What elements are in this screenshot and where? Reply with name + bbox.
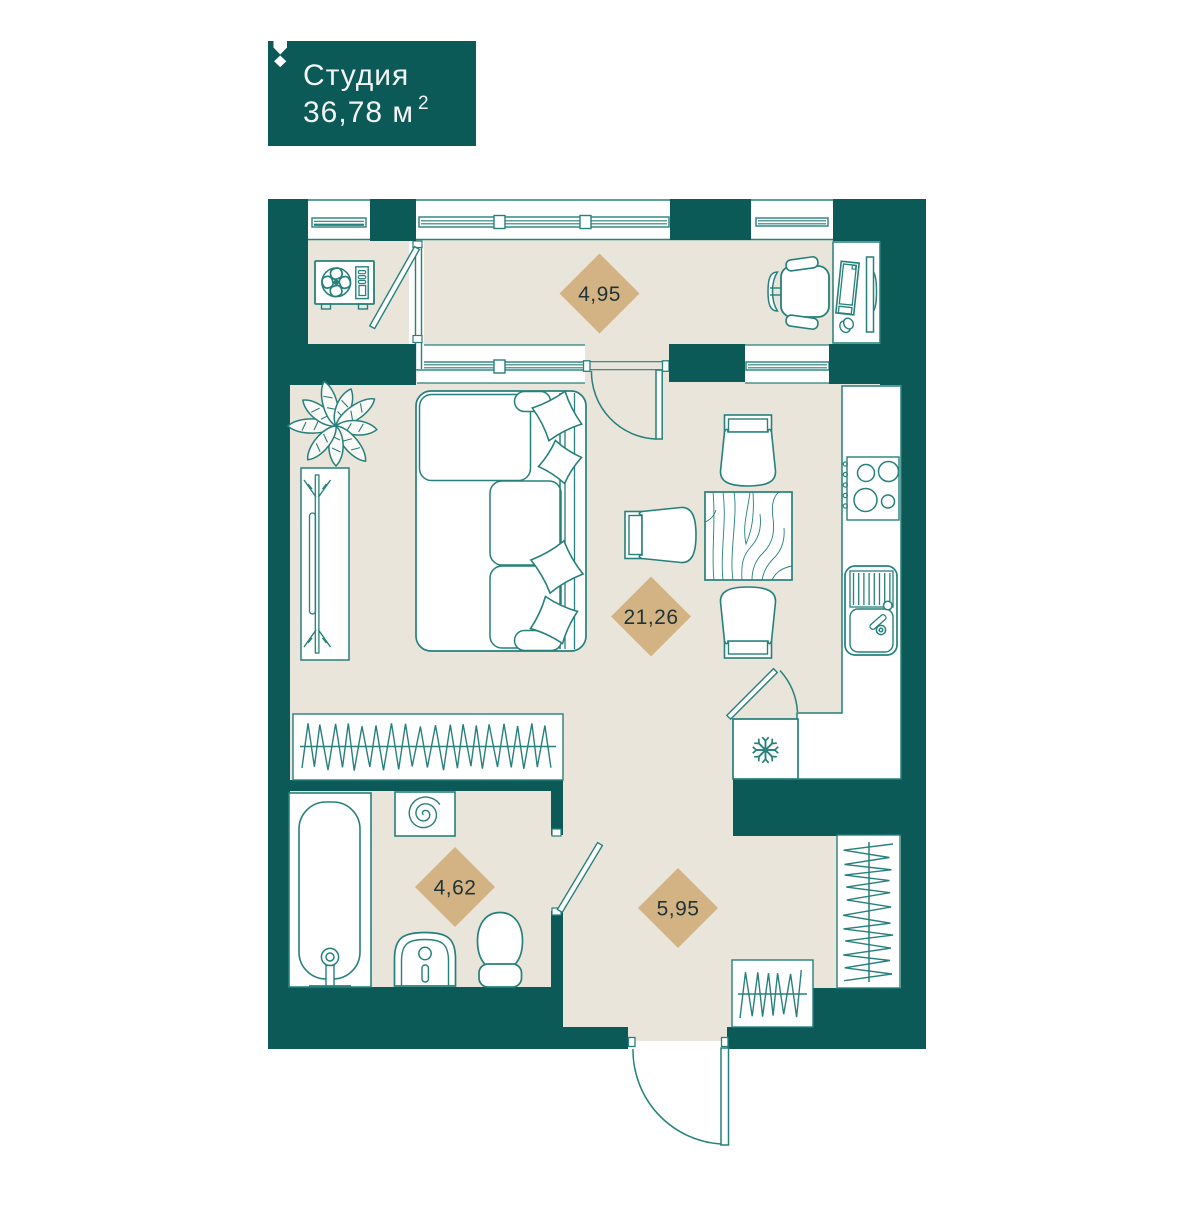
svg-text:36,78 м: 36,78 м xyxy=(303,96,414,129)
svg-text:21,26: 21,26 xyxy=(623,606,678,629)
svg-text:5,95: 5,95 xyxy=(657,897,700,920)
svg-text:4,62: 4,62 xyxy=(434,876,477,899)
svg-text:Студия: Студия xyxy=(303,59,409,92)
svg-text:4,95: 4,95 xyxy=(578,283,621,306)
svg-text:2: 2 xyxy=(418,93,429,114)
